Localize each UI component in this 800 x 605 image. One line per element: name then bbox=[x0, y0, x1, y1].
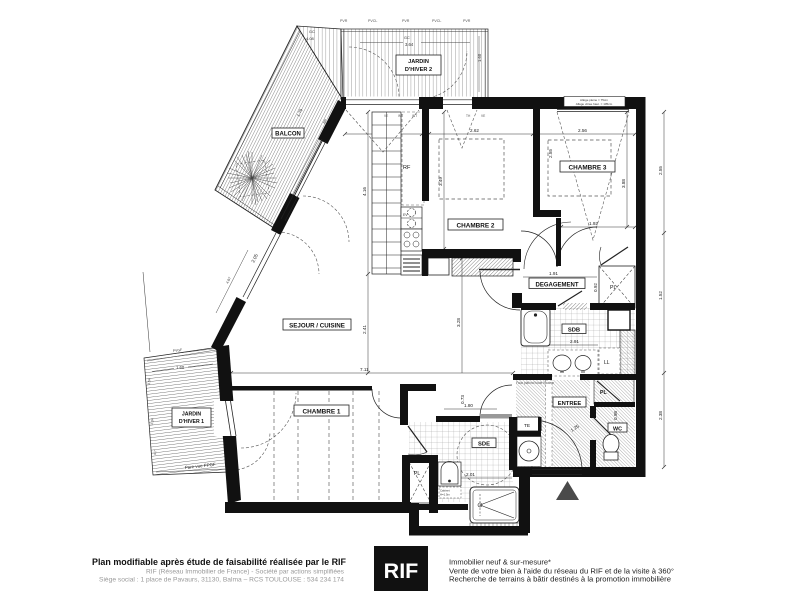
svg-text:0.92: 0.92 bbox=[593, 283, 598, 292]
svg-text:3.54: 3.54 bbox=[147, 378, 151, 385]
svg-text:4.08: 4.08 bbox=[306, 36, 315, 41]
svg-text:2.91: 2.91 bbox=[570, 339, 579, 344]
svg-text:CHAMBRE 2: CHAMBRE 2 bbox=[457, 223, 495, 230]
svg-text:4.7: 4.7 bbox=[153, 450, 157, 455]
svg-text:INT: INT bbox=[412, 114, 417, 118]
svg-text:PL: PL bbox=[414, 471, 420, 477]
svg-text:LL: LL bbox=[604, 360, 610, 366]
svg-text:RIF: RIF bbox=[384, 559, 419, 583]
svg-text:SDE: SDE bbox=[478, 442, 490, 448]
svg-text:TE: TE bbox=[524, 423, 530, 429]
svg-text:H=1.5m: H=1.5m bbox=[440, 493, 451, 497]
svg-text:SEJOUR / CUISINE: SEJOUR / CUISINE bbox=[289, 323, 345, 330]
svg-text:3.28: 3.28 bbox=[456, 318, 461, 327]
svg-text:PVCL: PVCL bbox=[368, 19, 377, 23]
svg-text:1.92: 1.92 bbox=[589, 221, 598, 226]
svg-text:2.55: 2.55 bbox=[548, 149, 553, 158]
svg-text:PVR: PVR bbox=[463, 19, 471, 23]
svg-text:RF: RF bbox=[403, 165, 411, 171]
svg-text:2.55: 2.55 bbox=[658, 166, 663, 175]
svg-text:Immobilier neuf & sur-mesure*: Immobilier neuf & sur-mesure* bbox=[449, 560, 551, 567]
svg-text:RIF (Réseau Immobilier de Fran: RIF (Réseau Immobilier de France) - Soci… bbox=[146, 570, 344, 576]
svg-text:DEGAGEMENT: DEGAGEMENT bbox=[535, 283, 578, 289]
svg-text:1.60: 1.60 bbox=[477, 53, 482, 62]
svg-text:3.34: 3.34 bbox=[150, 418, 154, 425]
svg-text:ENTREE: ENTREE bbox=[558, 401, 582, 407]
svg-text:BALCON: BALCON bbox=[275, 132, 301, 138]
svg-text:7.11: 7.11 bbox=[360, 367, 369, 372]
svg-text:Recherche de terrains à bâtir: Recherche de terrains à bâtir destinés à… bbox=[449, 577, 671, 584]
svg-text:PL: PL bbox=[610, 285, 616, 291]
svg-text:EV: EV bbox=[403, 213, 408, 217]
svg-text:SDB: SDB bbox=[568, 328, 580, 334]
svg-text:GC: GC bbox=[404, 36, 410, 40]
svg-text:3.88: 3.88 bbox=[621, 179, 626, 188]
svg-text:PVR: PVR bbox=[402, 19, 410, 23]
svg-text:D'HIVER 2: D'HIVER 2 bbox=[405, 67, 432, 73]
svg-text:2.62: 2.62 bbox=[470, 128, 479, 133]
svg-text:INT: INT bbox=[398, 114, 403, 118]
svg-text:2.56: 2.56 bbox=[578, 128, 587, 133]
svg-text:0.98: 0.98 bbox=[613, 411, 618, 420]
svg-text:2.41: 2.41 bbox=[362, 325, 367, 334]
svg-text:0.73: 0.73 bbox=[460, 395, 465, 404]
svg-text:1.60: 1.60 bbox=[176, 365, 185, 370]
svg-text:TH: TH bbox=[466, 114, 471, 118]
svg-text:JARDIN: JARDIN bbox=[408, 59, 429, 65]
svg-text:1.91: 1.91 bbox=[549, 271, 558, 276]
svg-text:4.16: 4.16 bbox=[362, 187, 367, 196]
svg-text:PL: PL bbox=[600, 390, 607, 396]
svg-text:D'HIVER 1: D'HIVER 1 bbox=[179, 419, 204, 425]
svg-text:VE: VE bbox=[481, 114, 485, 118]
svg-text:2.38: 2.38 bbox=[658, 411, 663, 420]
svg-text:PVCL: PVCL bbox=[432, 19, 441, 23]
svg-text:JARDIN: JARDIN bbox=[182, 412, 202, 418]
svg-text:PVR: PVR bbox=[340, 19, 348, 23]
svg-text:GC: GC bbox=[309, 30, 315, 34]
svg-text:WC: WC bbox=[613, 427, 622, 433]
svg-text:Faux plafond toute hauteur: Faux plafond toute hauteur bbox=[516, 381, 555, 385]
svg-text:2.01: 2.01 bbox=[466, 472, 475, 477]
svg-text:Siège social : 1 place de Pava: Siège social : 1 place de Pavaurs, 31130… bbox=[99, 578, 345, 584]
svg-text:Vente de votre bien à l'aide d: Vente de votre bien à l'aide du réseau d… bbox=[449, 568, 674, 576]
svg-text:1.80: 1.80 bbox=[464, 403, 473, 408]
svg-text:Plan modifiable après étude de: Plan modifiable après étude de faisabili… bbox=[92, 557, 346, 568]
svg-text:1.52: 1.52 bbox=[658, 291, 663, 300]
svg-text:VE: VE bbox=[384, 114, 388, 118]
svg-text:Allège vitrée haut. = 105cm: Allège vitrée haut. = 105cm bbox=[576, 102, 613, 106]
svg-text:CHAMBRE 1: CHAMBRE 1 bbox=[303, 409, 341, 416]
svg-text:CHAMBRE 3: CHAMBRE 3 bbox=[569, 165, 607, 172]
svg-text:3.64: 3.64 bbox=[405, 42, 414, 47]
